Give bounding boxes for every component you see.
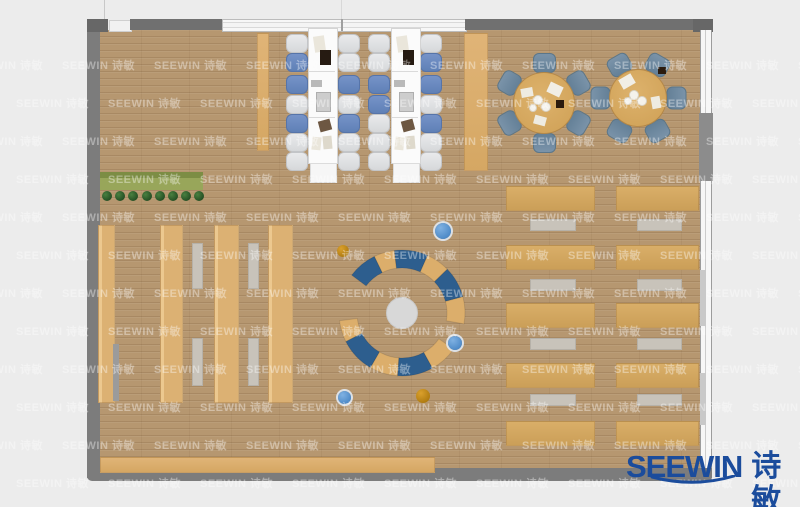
- blue-stool: [435, 223, 451, 239]
- blue-stool: [338, 391, 351, 404]
- logo-cn-text: 诗敏: [751, 450, 800, 507]
- blue-stool: [448, 336, 462, 350]
- stools-layer: [0, 0, 800, 507]
- floorplan-canvas: SEEWIN 诗敏SEEWIN 诗敏SEEWIN 诗敏SEEWIN 诗敏SEEW…: [0, 0, 800, 507]
- orange-stool: [337, 245, 349, 257]
- seewin-logo: SEEWIN 诗敏: [626, 450, 800, 507]
- logo-swoosh-icon: [650, 475, 736, 487]
- logo-brand-text: SEEWIN: [626, 450, 742, 484]
- orange-stool: [416, 389, 430, 403]
